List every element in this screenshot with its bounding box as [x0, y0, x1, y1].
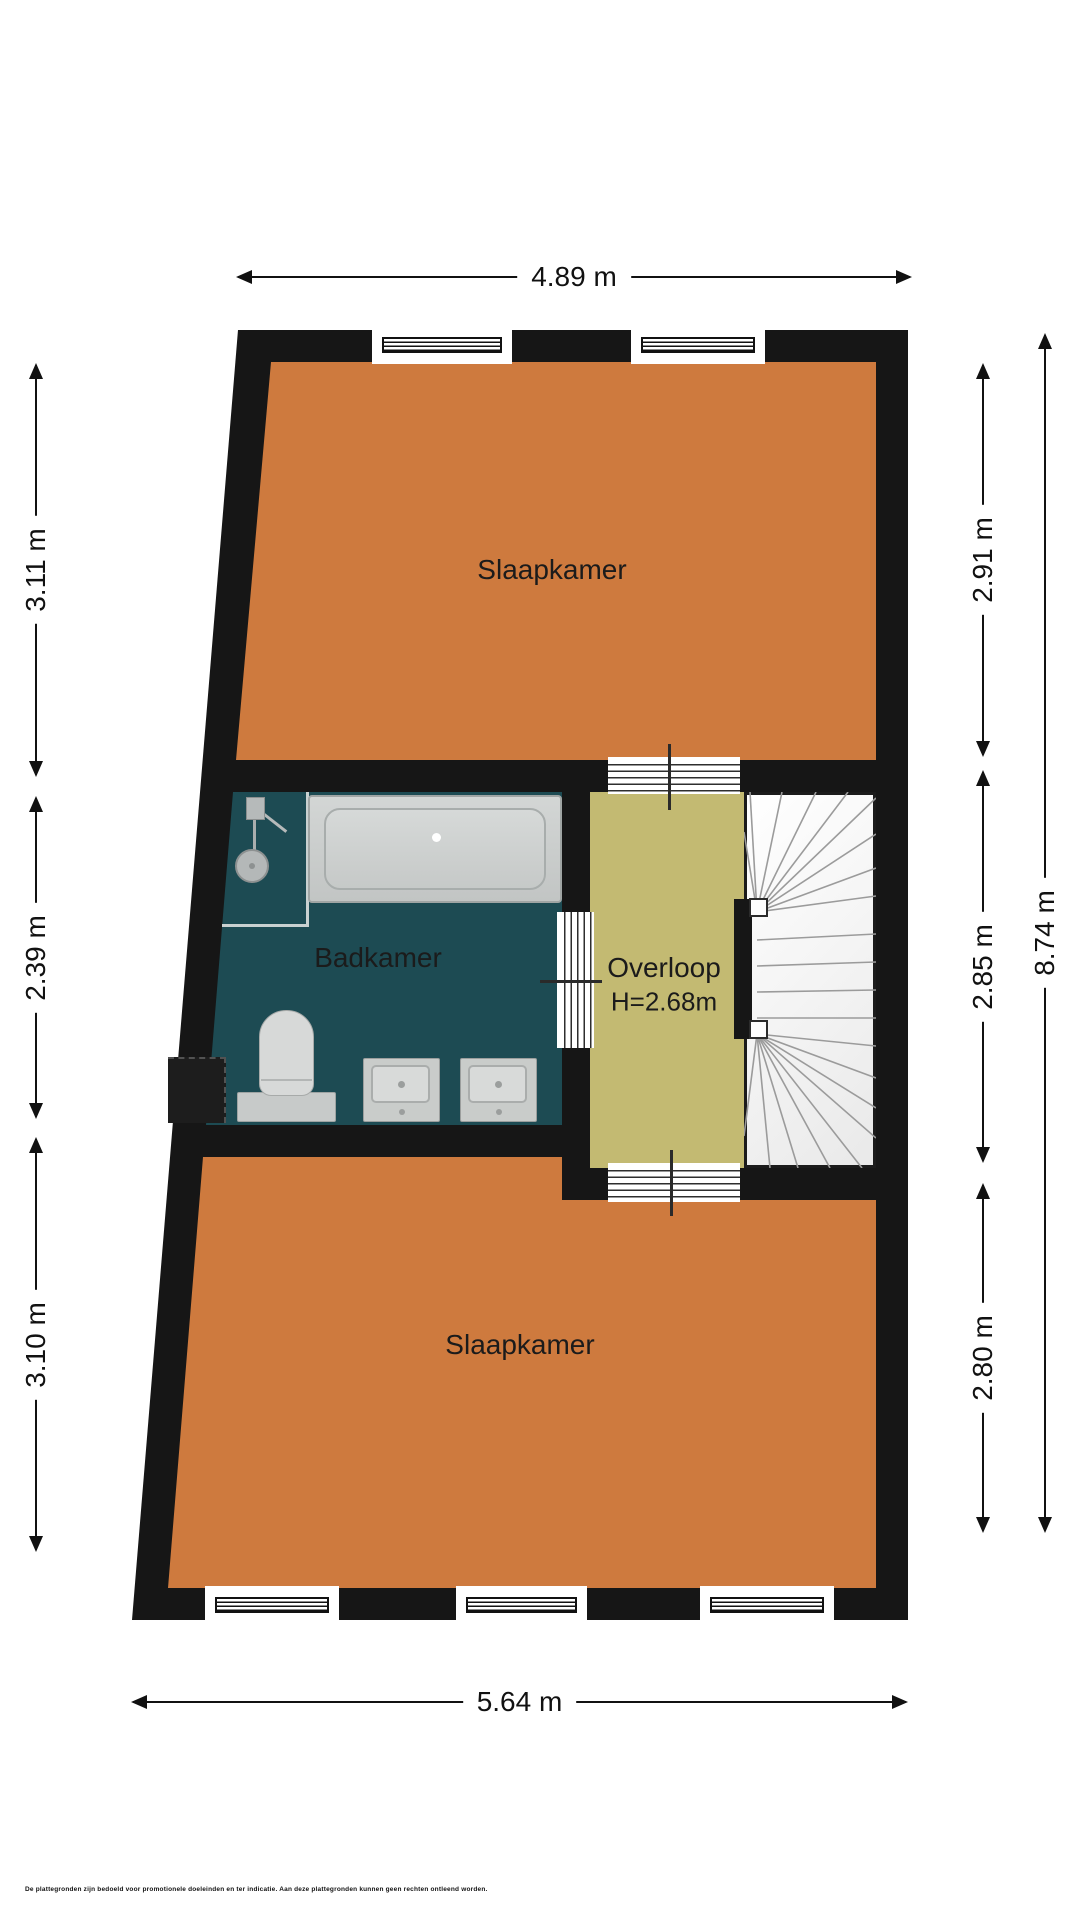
dimension-label: 2.80 m [966, 1303, 1000, 1413]
dimension-right-1: 2.91 m [976, 363, 990, 757]
dimension-label: 2.91 m [966, 505, 1000, 615]
dimension-label: 2.39 m [19, 903, 53, 1013]
window-frame [641, 337, 755, 353]
shower-stem [253, 818, 256, 852]
door-threshold-lines [608, 759, 740, 792]
bathtub-basin [324, 808, 546, 890]
shower-area-line-horizontal [222, 924, 309, 927]
dimension-top: 4.89 m [236, 270, 912, 284]
dimension-label: 3.10 m [19, 1290, 53, 1400]
shower-valve [246, 797, 265, 820]
arrow-down-icon [1038, 1517, 1052, 1533]
dimension-right-2: 2.85 m [976, 770, 990, 1163]
window-bottom-1 [205, 1586, 339, 1624]
dimension-right-overall: 8.74 m [1038, 333, 1052, 1533]
void-box [168, 1057, 226, 1123]
arrow-right-icon [892, 1695, 908, 1709]
arrow-left-icon [131, 1695, 147, 1709]
dimension-left-1: 3.11 m [29, 363, 43, 777]
label-landing-height: H=2.68m [611, 987, 717, 1018]
door-threshold-lines [608, 1165, 740, 1200]
arrow-down-icon [29, 1103, 43, 1119]
arrow-up-icon [1038, 333, 1052, 349]
arrow-down-icon [976, 1517, 990, 1533]
arrow-down-icon [976, 741, 990, 757]
dimension-label: 2.85 m [966, 912, 1000, 1022]
newel-post-top [749, 898, 768, 917]
window-frame [710, 1597, 824, 1613]
arrow-up-icon [29, 363, 43, 379]
label-bedroom-top: Slaapkamer [477, 554, 626, 586]
sink-drain [399, 1109, 405, 1115]
label-landing: Overloop [607, 952, 721, 984]
dimension-bottom: 5.64 m [131, 1695, 908, 1709]
arrow-left-icon [236, 270, 252, 284]
arrow-up-icon [29, 1137, 43, 1153]
dimension-left-3: 3.10 m [29, 1137, 43, 1552]
floor-plan: Slaapkamer Badkamer Overloop H=2.68m Sla… [0, 0, 1080, 1920]
label-bedroom-bottom: Slaapkamer [445, 1329, 594, 1361]
window-frame [466, 1597, 577, 1613]
arrow-up-icon [976, 1183, 990, 1199]
door-landing-north [608, 757, 740, 794]
arrow-up-icon [29, 796, 43, 812]
sink-1 [363, 1058, 440, 1122]
bathtub [308, 795, 562, 903]
dimension-right-3: 2.80 m [976, 1183, 990, 1533]
arrow-down-icon [29, 1536, 43, 1552]
shower-head [235, 849, 269, 883]
newel-post-bottom [749, 1020, 768, 1039]
toilet [259, 1010, 314, 1096]
arrow-right-icon [896, 270, 912, 284]
dimension-label: 4.89 m [517, 260, 631, 294]
window-frame [215, 1597, 329, 1613]
dimension-left-2: 2.39 m [29, 796, 43, 1119]
door-tick-north [668, 744, 671, 810]
stair-railing [734, 899, 752, 1039]
bathtub-drain [432, 833, 441, 842]
door-tick-south [670, 1150, 673, 1216]
disclaimer-text: De plattegronden zijn bedoeld voor promo… [25, 1886, 488, 1893]
window-bottom-3 [700, 1586, 834, 1624]
stair-treads [744, 792, 876, 1168]
arrow-up-icon [976, 770, 990, 786]
dimension-label: 3.11 m [19, 516, 53, 624]
door-tick-bathroom [540, 980, 602, 983]
label-bathroom: Badkamer [314, 942, 442, 974]
toilet-base [237, 1092, 336, 1122]
arrow-down-icon [29, 761, 43, 777]
door-landing-south [608, 1163, 740, 1202]
window-frame [382, 337, 502, 353]
dimension-label: 8.74 m [1028, 878, 1062, 988]
stairwell [744, 792, 876, 1168]
sink-tap [495, 1081, 502, 1088]
window-bottom-2 [456, 1586, 587, 1624]
window-top-2 [631, 326, 765, 364]
window-top-1 [372, 326, 512, 364]
dimension-label: 5.64 m [463, 1685, 577, 1719]
shower-head-dot [249, 863, 255, 869]
arrow-down-icon [976, 1147, 990, 1163]
arrow-up-icon [976, 363, 990, 379]
sink-2 [460, 1058, 537, 1122]
toilet-seam [261, 1079, 312, 1081]
sink-tap [398, 1081, 405, 1088]
sink-drain [496, 1109, 502, 1115]
